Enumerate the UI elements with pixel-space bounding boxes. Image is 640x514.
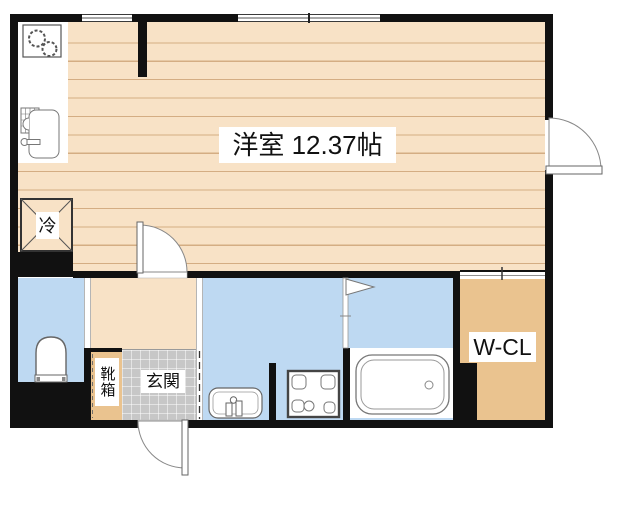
toilet-icon [35,337,67,382]
kitchen-sink-icon [21,108,59,158]
entry-door-swing-icon [138,420,188,475]
walk-in-closet-label: W-CL [469,332,536,362]
balcony-door-swing-icon [545,118,602,174]
shower-icon [340,278,374,348]
shoe-box-label: 靴箱 [95,358,119,406]
bathtub-icon [356,355,449,414]
washing-machine-pan-icon [288,371,339,417]
washbasin-icon [209,388,262,418]
stove-icon [23,25,61,57]
room-door-swing-icon [137,222,187,278]
fixtures-layer [0,0,640,514]
refrigerator-label: 冷 [36,212,59,239]
main-room-label: 洋室 12.37帖 [219,127,396,163]
entrance-label: 玄関 [141,370,185,393]
floorplan-canvas: 洋室 12.37帖 冷 靴箱 玄関 W-CL [0,0,640,514]
